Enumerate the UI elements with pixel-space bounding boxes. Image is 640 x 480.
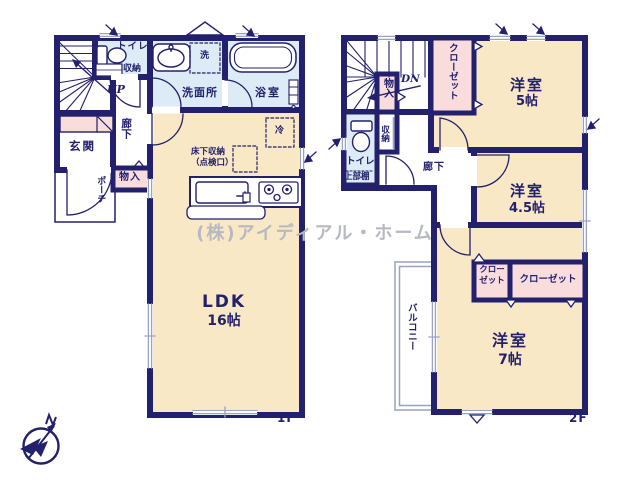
label-room45: 洋室 [495, 182, 559, 201]
label-stairs-up: UP [107, 83, 125, 97]
bath-radiator-icon [289, 80, 298, 109]
bay-window-icon [187, 22, 223, 35]
label-room45-size: 4.5帖 [495, 201, 559, 217]
label-fridge: 冷 [275, 126, 284, 137]
label-porch: ポーチ [94, 176, 105, 203]
label-ldk-size: 16帖 [184, 313, 264, 331]
watermark: (株)アイディアル・ホーム [150, 223, 480, 246]
label-ldk: LDK [184, 292, 264, 313]
room7 [434, 225, 585, 412]
label-storage-1f: 収納 [123, 64, 141, 75]
compass-icon [20, 415, 59, 464]
label-storage-2f: 収納 [379, 125, 390, 142]
label-underfloor-storage: 床下収納 （点検口） [191, 147, 234, 168]
label-room5: 洋室 [495, 76, 559, 95]
label-closet-room45: クロー ゼット [473, 265, 511, 286]
label-shelf-2f: 上部棚 [344, 172, 370, 183]
shoe-cabinet-icon [60, 116, 113, 132]
label-floor-2f: 2F [569, 411, 588, 426]
label-toilet-1f: トイレ [117, 41, 149, 53]
stove-icon [259, 182, 298, 203]
label-room7-size: 7帖 [478, 352, 542, 370]
counter-ledge [187, 206, 265, 219]
label-floor-1f: 1F [277, 411, 296, 426]
washbasin-icon [153, 44, 190, 71]
floor-plan-1f [55, 22, 316, 417]
label-toilet-2f: トイレ [346, 156, 375, 168]
label-balcony: バルコニー [405, 303, 417, 351]
label-monoire-1f: 物入 [119, 172, 141, 185]
label-room5-size: 5帖 [495, 94, 559, 110]
label-bathroom: 浴室 [255, 86, 281, 100]
porch-outline [55, 170, 115, 222]
label-monoire-2f: 物入 [380, 78, 393, 98]
label-washroom: 洗面所 [182, 86, 218, 100]
label-closet-room7: クローゼット [512, 274, 584, 286]
label-closet-room5: クローゼット [446, 43, 458, 100]
label-washer: 洗 [200, 51, 209, 62]
kitchen-sink-icon [196, 182, 248, 203]
label-hallway-1f: 廊下 [119, 118, 132, 139]
label-room7: 洋室 [478, 331, 542, 351]
floorplan-canvas: (株)アイディアル・ホーム トイレ 収納 UP 廊下 玄関 物入 ポーチ 洗面所… [0, 0, 640, 480]
label-hallway-2f: 廊下 [423, 162, 445, 175]
bathtub-icon [230, 43, 296, 72]
label-stairs-dn: DN [401, 73, 420, 86]
label-entrance: 玄関 [69, 139, 96, 153]
